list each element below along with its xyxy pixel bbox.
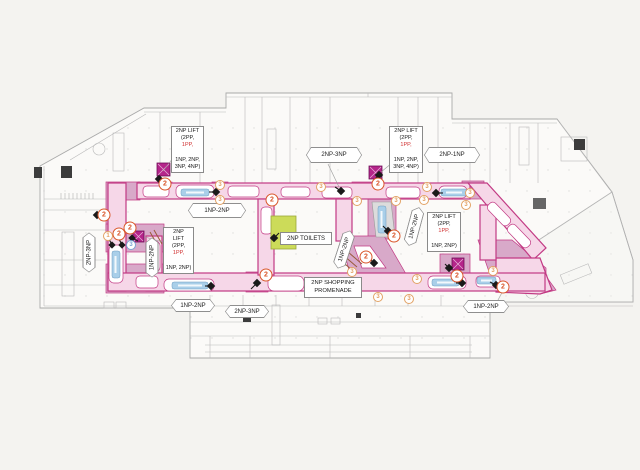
level-tag: 2NP-1NP [424,147,480,163]
level-tag-label: 2NP-3NP [307,148,361,162]
shopping-promenade-label: 2NP SHOPPING PROMENADE [304,277,362,298]
lift-label-top-left: 2NP LIFT(2PP, 1PP,1NP, 2NP,3NP, 4NP) [171,126,204,173]
node-circle-2: 2 [372,178,385,191]
node-circle-3: 3 [347,267,357,277]
node-circle-2: 2 [159,178,172,191]
promenade-label-line2: PROMENADE [314,288,351,296]
level-tag-label: 1NP-2NP [172,300,214,311]
node-circle-3: 3 [373,292,383,302]
promenade-label-line1: 2NP SHOPPING [311,280,354,288]
level-tag: 2NP-3NP [225,305,269,318]
node-circle-2: 2 [451,270,464,283]
node-circle-3: 3 [404,294,414,304]
node-circle-3: 3 [316,182,326,192]
level-tag: 1NP-2NP [146,238,159,278]
node-circle-2: 2 [388,230,401,243]
level-tag: 1NP-2NP [463,300,509,313]
node-circle-2: 2 [98,209,111,222]
node-circle-3: 3 [215,180,225,190]
node-circle-3: 3 [488,266,498,276]
node-circle-3: 3 [391,196,401,206]
lift-label-top-center: 2NP LIFT(2PP, 1PP,1NP, 2NP,3NP, 4NP) [389,126,423,173]
level-tag-label: 2NP-1NP [425,148,479,162]
level-tag-label: 1NP-2NP [146,238,157,276]
level-tag-label: 2NP-3NP [226,306,268,317]
lift-label-right: 2NP LIFT(2PP, 1PP,1NP, 2NP) [427,212,461,252]
floor-plan-stage: 2NP TOILETS 2NP SHOPPING PROMENADE 2NP L… [0,0,640,470]
level-tag: 2NP-3NP [306,147,362,163]
node-circle-3: 3 [126,240,136,250]
node-circle-3: 3 [215,195,225,205]
level-tag-label: 1NP-2NP [464,301,508,312]
level-tag: 1NP-2NP [188,203,246,218]
node-circle-3: 3 [465,188,475,198]
node-circle-2: 2 [497,281,510,294]
node-circle-2: 2 [266,194,279,207]
node-circle-3: 3 [352,196,362,206]
toilets-label: 2NP TOILETS [280,232,332,245]
level-tag: 2NP-3NP [83,233,96,273]
node-circle-3: 3 [422,182,432,192]
node-circle-1: 1 [103,231,113,241]
toilets-label-text: 2NP TOILETS [287,236,325,242]
level-tag: 1NP-2NP [171,299,215,312]
node-circle-2: 2 [360,251,373,264]
level-tag-label: 2NP-3NP [83,233,94,271]
lift-label-left: 2NPLIFT(2PP, 1PP,1NP, 2NP) [163,227,194,274]
node-circle-3: 3 [412,274,422,284]
node-circle-3: 3 [419,195,429,205]
node-circle-3: 3 [461,200,471,210]
level-tag-label: 1NP-2NP [189,204,245,217]
node-circle-2: 2 [124,222,137,235]
node-circle-2: 2 [260,269,273,282]
